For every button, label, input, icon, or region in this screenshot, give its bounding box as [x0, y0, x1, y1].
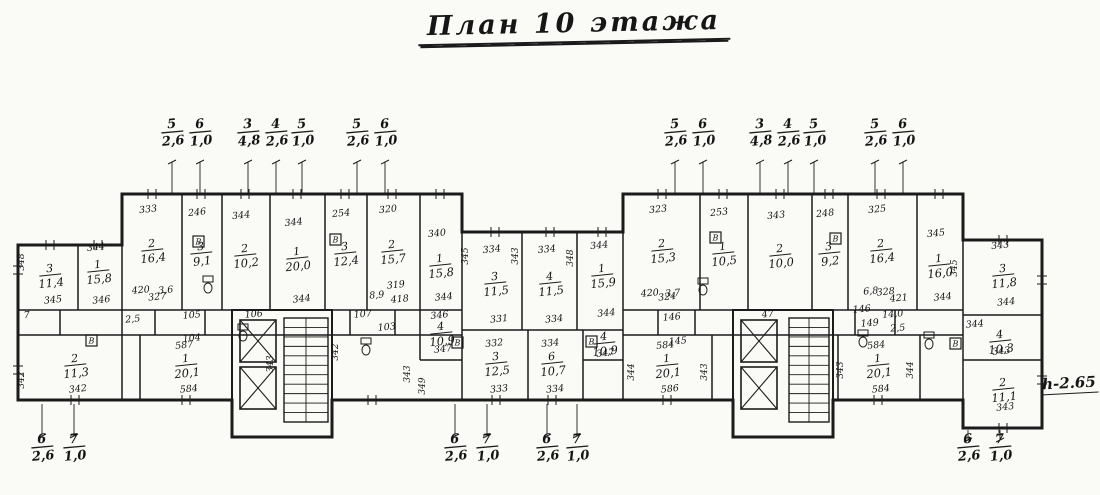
toilet-icon-bowl: [204, 283, 212, 293]
dimension-num: 5: [167, 117, 177, 133]
dimension-fraction: 62,6: [534, 431, 560, 465]
room-area: 11,8: [991, 275, 1018, 292]
dimension-num: 7: [69, 432, 79, 448]
room-plan-number: 332: [485, 337, 504, 350]
room-label-group: 334610,7334: [537, 337, 569, 396]
dimension-den: 2,6: [30, 448, 55, 465]
room-lower-number: 333: [489, 383, 508, 396]
room-label-group: 587120,1584: [170, 339, 202, 396]
vertical-label: 344: [627, 363, 637, 380]
dimension-num: 6: [195, 117, 205, 133]
dimension-den: 1,0: [291, 133, 315, 150]
room-lower-number: 331: [490, 313, 509, 326]
room-lower-number: 343: [996, 401, 1015, 414]
small-label: 103: [377, 321, 396, 334]
small-label: 2,5: [889, 322, 906, 334]
bath-icon-letter: В: [332, 236, 339, 245]
bath-icon-letter: В: [832, 235, 839, 244]
room-plan-number: 334: [537, 243, 556, 256]
room-index: 1: [934, 252, 942, 266]
room-index: 1: [597, 262, 605, 276]
dimension-fraction: 52,6: [344, 116, 370, 150]
room-label-group: 344115,8346: [83, 241, 115, 307]
small-label: 146: [662, 311, 681, 324]
room-label-group: 320215,7319: [375, 203, 410, 292]
dimension-den: 1,0: [476, 448, 500, 465]
room-lower-number: 344: [997, 296, 1016, 309]
vertical-label: 343: [511, 247, 521, 264]
small-label: 420: [130, 284, 150, 297]
dimension-fraction: 61,0: [691, 116, 716, 150]
room-lower-number: 586: [660, 383, 679, 396]
dimension-num: 6: [380, 117, 390, 133]
dimension-num: 7: [572, 432, 582, 448]
room-label-group: 211,1343: [989, 375, 1018, 414]
room-label-group: 584120,1584: [862, 339, 894, 396]
plan-title: План 10 этажа: [418, 5, 731, 47]
room-plan-number: 246: [186, 206, 206, 219]
room-lower-number: 344: [292, 293, 311, 306]
room-label-group: 410,3343: [986, 327, 1015, 359]
room-area: 16,4: [869, 250, 896, 267]
dimension-den: 4,8: [749, 133, 773, 150]
vertical-label: 349: [418, 377, 428, 394]
stair-core: [232, 310, 332, 437]
room-area: 15,9: [590, 275, 617, 292]
room-label-group: 344115,9344: [586, 239, 620, 320]
dimension-num: 6: [898, 117, 908, 133]
room-label-group: 346410,9347: [426, 309, 456, 356]
dimension-fraction: 62,6: [955, 431, 981, 465]
bath-icon-letter: В: [952, 340, 959, 349]
dimension-fraction: 62,6: [442, 431, 468, 465]
dimension-den: 1,0: [189, 133, 213, 150]
vertical-label: 343: [700, 363, 710, 380]
dimension-den: 1,0: [989, 448, 1013, 465]
room-index: 1: [873, 352, 881, 366]
dimension-fraction: 52,6: [159, 116, 185, 150]
room-label-group: 343311,8344: [987, 239, 1020, 309]
dimension-fraction: 71,0: [475, 431, 500, 465]
room-area: 11,5: [483, 283, 510, 300]
room-label-group: 332312,5333: [481, 337, 512, 396]
room-lower-number: 319: [386, 279, 405, 292]
small-label: 146: [852, 303, 871, 316]
room-area: 15,8: [428, 265, 455, 282]
room-lower-number: 347: [433, 343, 453, 356]
small-label: 3,7: [665, 287, 682, 299]
dimension-den: 1,0: [803, 133, 827, 150]
scanned-floor-plan-page: План 10 этажа 333216,432724639,1344210,2…: [0, 0, 1100, 495]
vertical-label: 348: [566, 249, 576, 266]
room-label-group: 343210,0: [763, 209, 795, 271]
room-index: 1: [181, 352, 189, 366]
small-label: 14,0: [882, 308, 904, 321]
room-plan-number: 253: [708, 206, 728, 219]
room-label-group: 311,4345: [36, 261, 66, 307]
vertical-label: 343: [836, 361, 846, 378]
room-area: 20,0: [284, 258, 312, 275]
room-area: 12,4: [333, 253, 360, 270]
room-plan-number: 333: [138, 203, 157, 216]
stair-core: [733, 310, 833, 437]
dimension-fraction: 34,8: [748, 116, 773, 150]
room-area: 15,8: [86, 271, 113, 288]
room-plan-number: 344: [86, 241, 105, 254]
toilet-icon-bowl: [925, 339, 933, 349]
room-lower-number: 347: [596, 347, 616, 360]
room-area: 12,5: [484, 363, 511, 380]
dimension-num: 5: [670, 117, 680, 133]
vertical-label: 348: [17, 253, 27, 270]
room-index: 3: [340, 240, 348, 254]
dimension-num: 7: [482, 432, 492, 448]
dimension-fraction: 51,0: [802, 116, 827, 150]
room-area: 15,3: [650, 250, 677, 267]
dimension-num: 3: [243, 117, 253, 133]
dimension-den: 1,0: [692, 133, 716, 150]
dimension-fraction: 52,6: [662, 116, 688, 150]
dimension-den: 2,6: [160, 133, 185, 150]
room-index: 3: [998, 262, 1006, 276]
dimension-num: 6: [542, 432, 552, 448]
room-plan-number: 344: [284, 216, 303, 229]
dimension-num: 7: [995, 432, 1005, 448]
room-plan-number: 334: [482, 243, 501, 256]
bath-icon-letter: В: [88, 337, 95, 346]
room-index: 6: [547, 350, 555, 364]
room-area: 20,1: [865, 365, 893, 382]
small-label: 2,5: [124, 313, 141, 325]
dimension-den: 2,6: [663, 133, 688, 150]
room-index: 2: [146, 237, 155, 251]
vertical-label: 343: [403, 365, 413, 382]
dimension-den: 1,0: [374, 133, 398, 150]
small-label: 421: [888, 292, 908, 305]
small-label: 344: [965, 318, 984, 331]
dimension-num: 6: [698, 117, 708, 133]
room-index: 1: [435, 252, 443, 266]
room-index: 2: [875, 237, 884, 251]
dimension-den: 2,6: [535, 448, 560, 465]
room-lower-number: 344: [597, 307, 616, 320]
room-area: 9,2: [820, 253, 840, 269]
room-plan-number: 248: [815, 207, 835, 220]
room-lower-number: 344: [434, 291, 453, 304]
dimension-num: 5: [809, 117, 819, 133]
room-area: 10,2: [233, 255, 260, 272]
room-lower-number: 345: [43, 294, 62, 307]
small-label: 418: [389, 293, 409, 306]
small-label: 107: [353, 308, 373, 321]
room-lower-number: 334: [545, 313, 564, 326]
small-label: 149: [860, 317, 879, 330]
room-index: 3: [45, 262, 53, 276]
dimension-den: 2,6: [863, 133, 888, 150]
room-area: 11,5: [538, 283, 565, 300]
room-index: 3: [490, 270, 498, 284]
room-area: 10,7: [540, 363, 568, 380]
room-lower-number: 343: [992, 345, 1011, 358]
dimension-den: 2,6: [776, 133, 801, 150]
vertical-label: 345: [461, 247, 471, 264]
room-index: 1: [93, 258, 101, 272]
dimension-fraction: 61,0: [373, 116, 398, 150]
room-area: 15,7: [380, 251, 408, 268]
dimension-num: 5: [870, 117, 880, 133]
room-plan-number: 340: [427, 227, 446, 240]
room-label-group: 211,3342: [61, 351, 91, 396]
toilet-icon-bowl: [362, 345, 370, 355]
room-index: 2: [239, 242, 248, 256]
room-area: 9,1: [192, 253, 212, 269]
room-plan-number: 334: [541, 337, 560, 350]
dimension-den: 2,6: [345, 133, 370, 150]
small-label: 3,6: [158, 284, 174, 296]
room-index: 3: [491, 350, 499, 364]
dimension-fraction: 61,0: [891, 116, 916, 150]
room-label-group: 344210,2: [228, 209, 260, 271]
dimension-num: 6: [963, 432, 973, 448]
room-area: 10,5: [711, 253, 738, 270]
dimension-fraction: 52,6: [862, 116, 888, 150]
dimension-den: 1,0: [63, 448, 87, 465]
room-lower-number: 346: [92, 294, 111, 307]
room-plan-number: 320: [378, 203, 397, 216]
toilet-icon: [203, 276, 213, 282]
floor-plan-svg: 333216,432724639,1344210,2344120,0344254…: [0, 0, 1100, 495]
small-label: 47: [760, 308, 775, 320]
room-index: 2: [997, 376, 1006, 390]
small-label: 104: [182, 332, 201, 345]
room-area: 11,4: [38, 275, 65, 292]
room-label-group: 344120,0344: [279, 216, 315, 306]
dimension-num: 4: [783, 117, 793, 133]
dimension-den: 2,6: [443, 448, 468, 465]
dimension-num: 5: [352, 117, 362, 133]
small-label: 8,9: [369, 289, 385, 301]
room-plan-number: 323: [648, 203, 667, 216]
room-plan-number: 345: [926, 227, 945, 240]
dimension-den: 1,0: [566, 448, 590, 465]
vertical-label: 342: [331, 343, 341, 360]
room-lower-number: 584: [179, 383, 198, 396]
small-label: 105: [182, 309, 201, 322]
room-index: 4: [598, 330, 607, 344]
toilet-icon: [361, 338, 371, 344]
bath-icon-letter: В: [195, 238, 202, 247]
room-index: 1: [718, 240, 726, 254]
vertical-label: 343: [266, 355, 276, 372]
small-label: 145: [668, 335, 687, 348]
dimension-num: 4: [271, 117, 281, 133]
room-plan-number: 343: [767, 209, 786, 222]
room-lower-number: 334: [545, 383, 564, 396]
dimension-fraction: 71,0: [565, 431, 590, 465]
dimension-num: 3: [755, 117, 765, 133]
room-label-group: 584120,1586: [651, 339, 683, 396]
dimension-den: 4,8: [237, 133, 261, 150]
room-index: 2: [656, 237, 665, 251]
room-plan-number: 344: [232, 209, 251, 222]
room-plan-number: 584: [867, 339, 886, 352]
room-area: 11,3: [63, 365, 90, 382]
ceiling-height-note: h-2.65: [1040, 372, 1099, 395]
dimension-fraction: 42,6: [775, 116, 801, 150]
room-label-group: 334311,5331: [479, 243, 513, 326]
small-label: 420: [639, 287, 659, 300]
room-lower-number: 342: [68, 383, 87, 396]
room-index: 2: [774, 242, 783, 256]
dimension-den: 2,6: [264, 133, 289, 150]
dimension-num: 5: [297, 117, 307, 133]
dimension-fraction: 61,0: [188, 116, 213, 150]
small-label: 7: [23, 310, 31, 322]
room-area: 20,1: [173, 365, 201, 382]
small-label: 6,8: [863, 285, 879, 297]
bath-icon-letter: В: [588, 338, 595, 347]
room-area: 20,1: [654, 365, 682, 382]
room-area: 16,4: [140, 250, 167, 267]
room-label-group: 410,9347: [590, 329, 619, 361]
dimension-den: 1,0: [892, 133, 916, 150]
vertical-label: 344: [906, 361, 916, 378]
dimension-fraction: 62,6: [29, 431, 55, 465]
vertical-label: 345: [950, 259, 960, 276]
room-label-group: 325216,4328: [864, 203, 899, 299]
room-index: 4: [435, 320, 444, 334]
room-plan-number: 325: [867, 203, 886, 216]
dimension-den: 2,6: [956, 448, 981, 465]
room-lower-number: 584: [871, 383, 890, 396]
room-plan-number: 254: [331, 207, 351, 220]
room-lower-number: 344: [933, 291, 952, 304]
room-plan-number: 344: [590, 239, 609, 252]
dimension-fraction: 71,0: [988, 431, 1013, 465]
dimension-num: 6: [450, 432, 460, 448]
room-area: 10,0: [768, 255, 795, 272]
room-index: 4: [544, 270, 553, 284]
dimension-fraction: 71,0: [62, 431, 87, 465]
dimension-fraction: 34,8: [236, 116, 261, 150]
room-index: 1: [662, 352, 670, 366]
room-label-group: 340115,8344: [424, 227, 457, 304]
bath-icon-letter: В: [454, 339, 461, 348]
room-index: 2: [386, 238, 395, 252]
bath-icon-letter: В: [712, 234, 719, 243]
dimension-num: 6: [37, 432, 47, 448]
room-index: 1: [292, 245, 300, 259]
room-index: 2: [69, 352, 78, 366]
dimension-fraction: 42,6: [263, 116, 289, 150]
room-index: 4: [994, 328, 1003, 342]
small-label: 106: [244, 308, 263, 321]
room-label-group: 334411,5334: [534, 243, 568, 326]
room-index: 3: [824, 240, 832, 254]
dimension-fraction: 51,0: [290, 116, 315, 150]
